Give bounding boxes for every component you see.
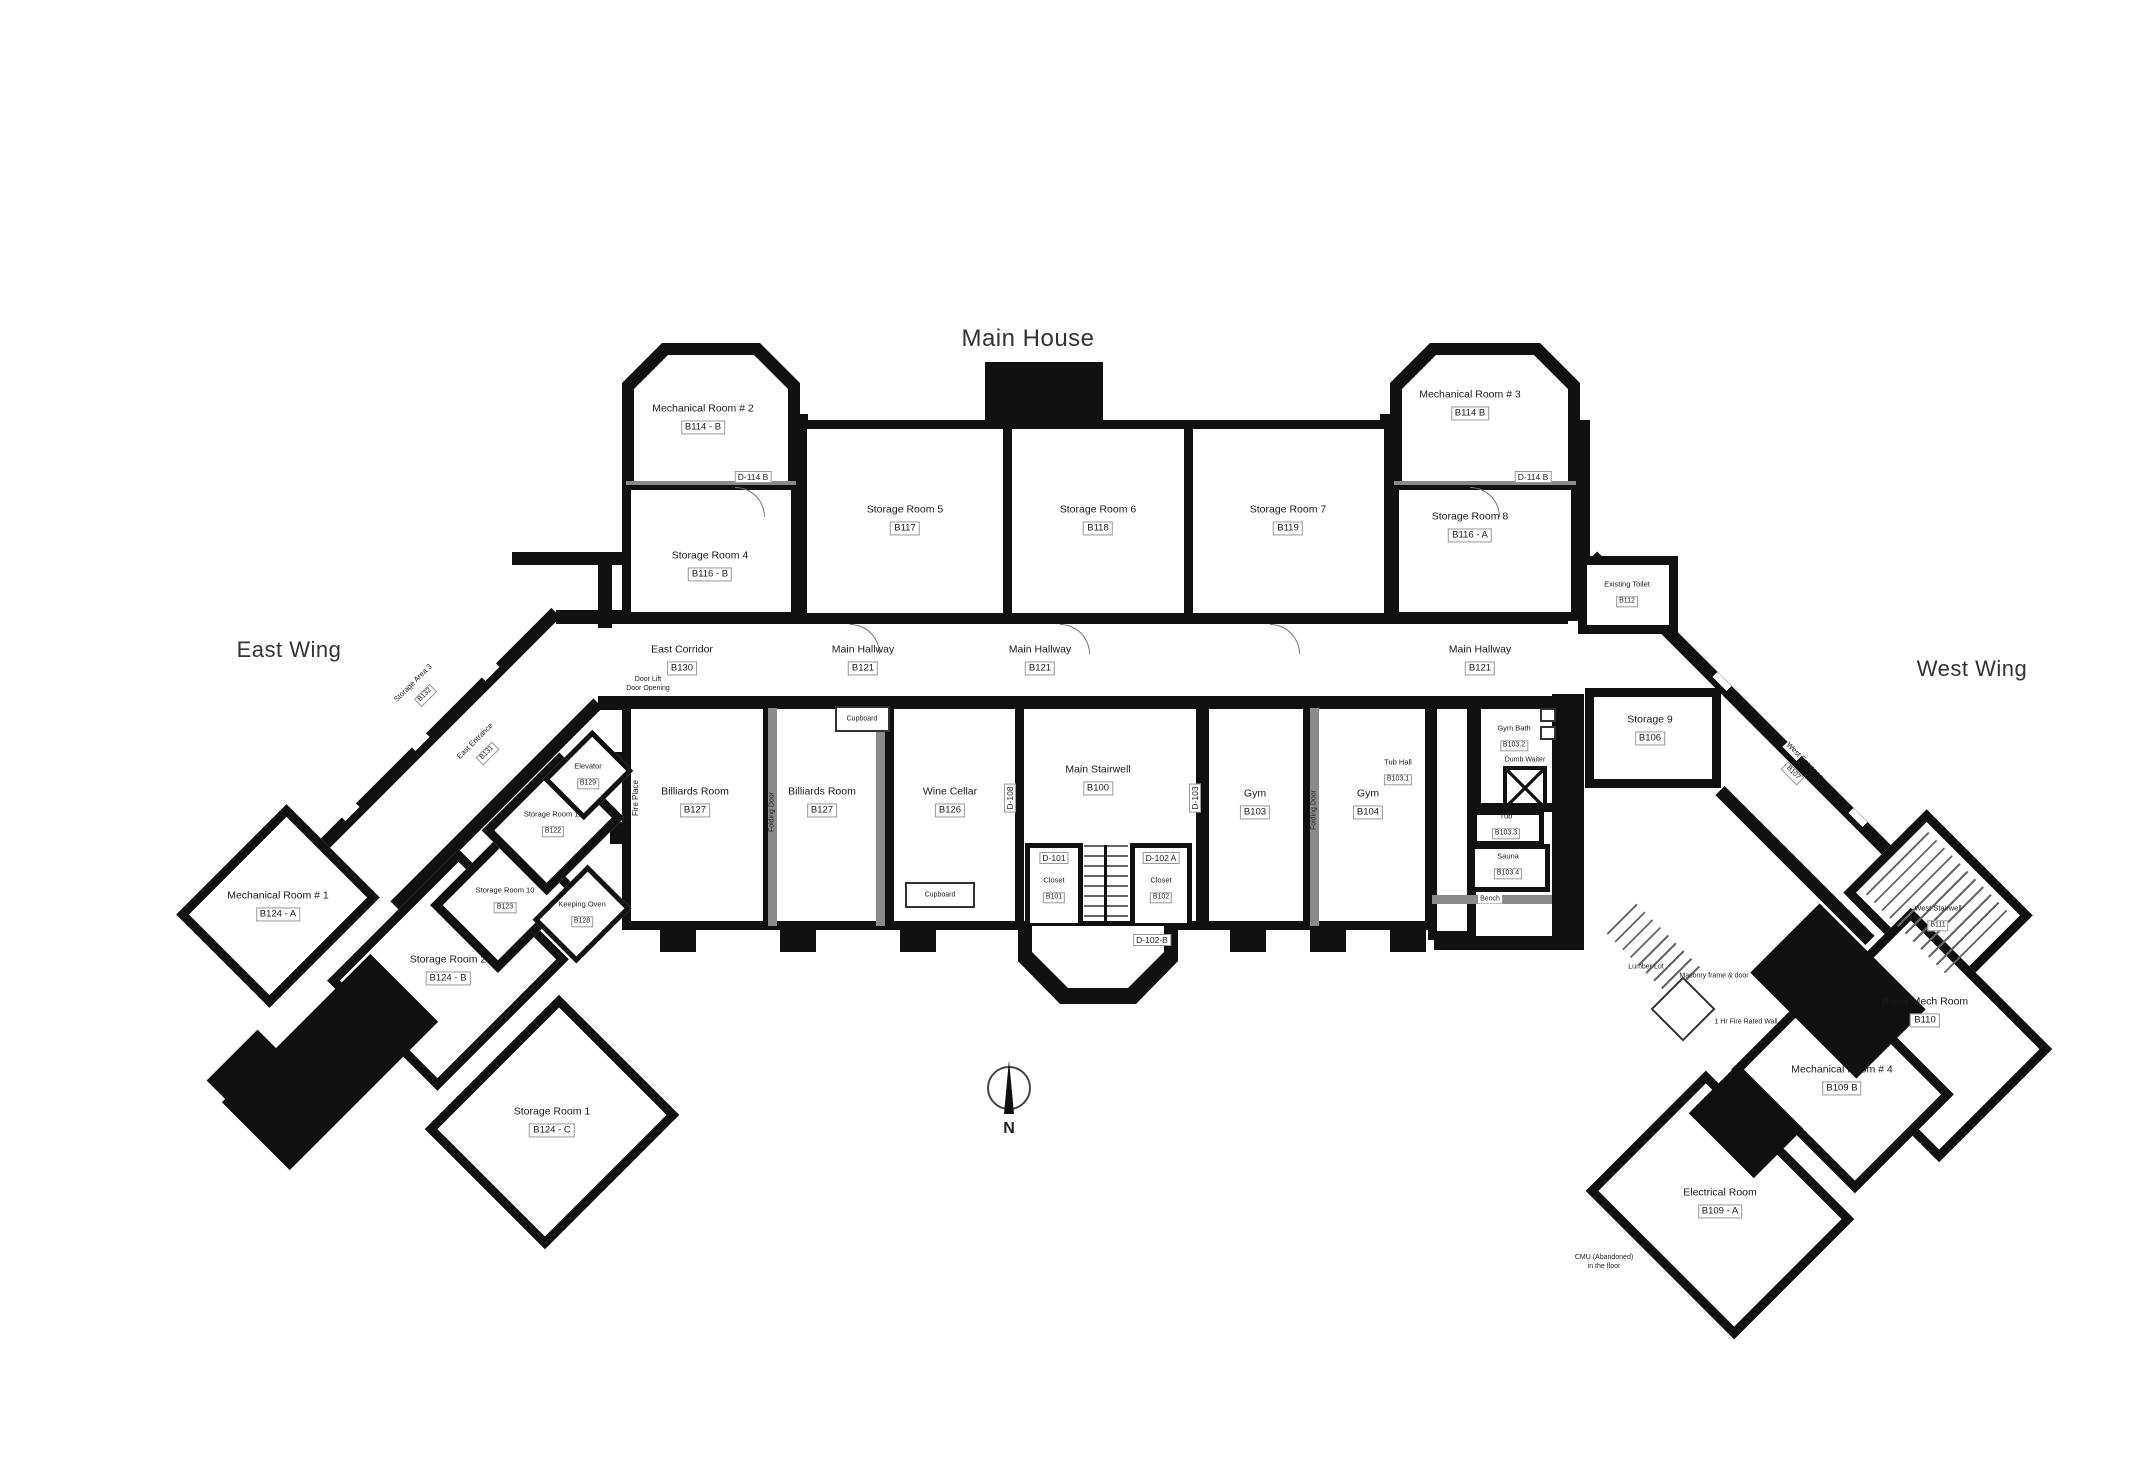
room-label-east-entrance: East EntranceB131	[455, 721, 509, 775]
room-label-mechanical-1: Mechanical Room # 1B124 - A	[227, 889, 329, 922]
room-label-storage-6: Storage Room 6B118	[1060, 503, 1136, 536]
dumb-waiter-label: Dumb Waiter	[1505, 755, 1546, 764]
room-label-wine-cellar: Wine CellarB126	[923, 785, 977, 818]
room-label-closet-1: ClosetB101	[1043, 875, 1065, 904]
room-label-mechanical-2: Mechanical Room # 2B114 - B	[652, 402, 754, 435]
room-label-billiards-1: Billiards RoomB127	[661, 785, 729, 818]
north-label: N	[1003, 1120, 1015, 1138]
east-wing-label: East Wing	[237, 637, 342, 663]
bath-fixture	[1540, 726, 1556, 740]
buttress	[660, 928, 696, 952]
buttress	[900, 928, 936, 952]
room-label-main-hallway-1: Main HallwayB121	[832, 643, 894, 676]
room-label-keeping-oven: Keeping OvenB128	[558, 899, 606, 928]
room-label-billiards-2: Billiards RoomB127	[788, 785, 856, 818]
room-label-mechanical-4: Mechanical Room # 4B109 B	[1791, 1063, 1893, 1096]
door-label-d108: D-108	[1004, 783, 1016, 812]
folding-door-strip	[876, 708, 885, 926]
west-wing-label: West Wing	[1917, 656, 2027, 682]
room-label-existing-toilet: Existing ToiletB112	[1604, 579, 1650, 608]
door-label-d102b: D-102-B	[1133, 934, 1171, 946]
room-label-closet-2: ClosetB102	[1150, 875, 1172, 904]
lumber-lot-note: Lumber Lot	[1628, 962, 1663, 971]
bench-label: Bench	[1478, 894, 1502, 903]
room-label-storage-5: Storage Room 5B117	[867, 503, 943, 536]
room-label-storage-7: Storage Room 7B119	[1250, 503, 1326, 536]
door-label-d114b: D-114 B	[735, 471, 772, 483]
room-label-elevator: ElevatorB129	[574, 761, 602, 790]
masonry-note: Masonry frame & door	[1679, 971, 1748, 980]
page-title: Main House	[961, 325, 1094, 353]
room-label-main-hallway-2: Main HallwayB121	[1009, 643, 1071, 676]
door-arc	[1270, 624, 1300, 654]
wall-mass	[1552, 694, 1584, 950]
corridor-tub-hall	[1428, 700, 1476, 940]
folding-door-label: Folding Door	[767, 792, 776, 832]
door-lift-note: Door Lift Door Opening	[626, 675, 670, 693]
buttress	[1230, 928, 1266, 952]
door-label-d101: D-101	[1039, 852, 1068, 864]
buttress	[780, 928, 816, 952]
cupboard-label: Cupboard	[925, 890, 956, 899]
room-label-electrical: Electrical RoomB109 - A	[1683, 1186, 1757, 1219]
wall	[598, 552, 612, 628]
room-label-storage-10: Storage Room 10B123	[476, 885, 535, 914]
room-label-gym-bath: Gym BathB103.2	[1497, 723, 1530, 752]
chimney-mass	[985, 362, 1103, 424]
compass-needle-icon	[1004, 1060, 1014, 1114]
room-label-sauna: SaunaB103.4	[1494, 851, 1522, 880]
room-label-storage-11: Storage Room 11B122	[524, 809, 582, 838]
bath-fixture	[1540, 708, 1556, 722]
folding-door-label: Folding Door	[1309, 790, 1318, 830]
room-label-tub: TubB103.3	[1492, 811, 1520, 840]
room-label-mechanical-3: Mechanical Room # 3B114 B	[1419, 388, 1521, 421]
room-label-gym-2: GymB104	[1353, 787, 1383, 820]
wall	[1434, 936, 1554, 950]
stair-rail	[1104, 845, 1107, 925]
fire-place-label: Fire Place	[631, 780, 641, 816]
room-label-storage-9: Storage 9B106	[1627, 713, 1673, 746]
buttress	[1310, 928, 1346, 952]
cupboard-label: Cupboard	[847, 714, 878, 723]
door-label-d114b: D-114 B	[1515, 471, 1552, 483]
room-label-east-corridor: East CorridorB130	[651, 643, 713, 676]
room-label-storage-1e: Storage Room 1B124 - C	[514, 1105, 590, 1138]
room-label-storage-2e: Storage Room 2B124 - B	[410, 953, 486, 986]
room-label-storage-area-3: Storage Area 3B132	[392, 662, 448, 718]
fire-rated-wall-note: 1 Hr Fire Rated Wall	[1714, 1017, 1777, 1026]
room-label-west-stairwell: West StairwellB111	[1914, 903, 1961, 932]
room-label-boiler-mech: Boiler Mech RoomB110	[1882, 995, 1968, 1028]
room-label-main-hallway-3: Main HallwayB121	[1449, 643, 1511, 676]
room-label-storage-8: Storage Room 8B116 - A	[1432, 510, 1508, 543]
buttress	[1390, 928, 1426, 952]
dumb-waiter-shaft	[1503, 766, 1547, 810]
room-label-tub-hall: Tub HallB103.1	[1384, 757, 1412, 786]
floor-plan: Main House East Wing West Wing Mechanica…	[0, 0, 2146, 1464]
cmu-note: CMU (Abandoned) in the floor	[1575, 1253, 1633, 1271]
door-label-d102a: D-102 A	[1143, 852, 1180, 864]
room-label-storage-4: Storage Room 4B116 - B	[672, 549, 748, 582]
room-label-gym-1: GymB103	[1240, 787, 1270, 820]
room-label-main-stairwell: Main StairwellB100	[1065, 763, 1130, 796]
door-label-d103: D-103	[1189, 783, 1201, 812]
